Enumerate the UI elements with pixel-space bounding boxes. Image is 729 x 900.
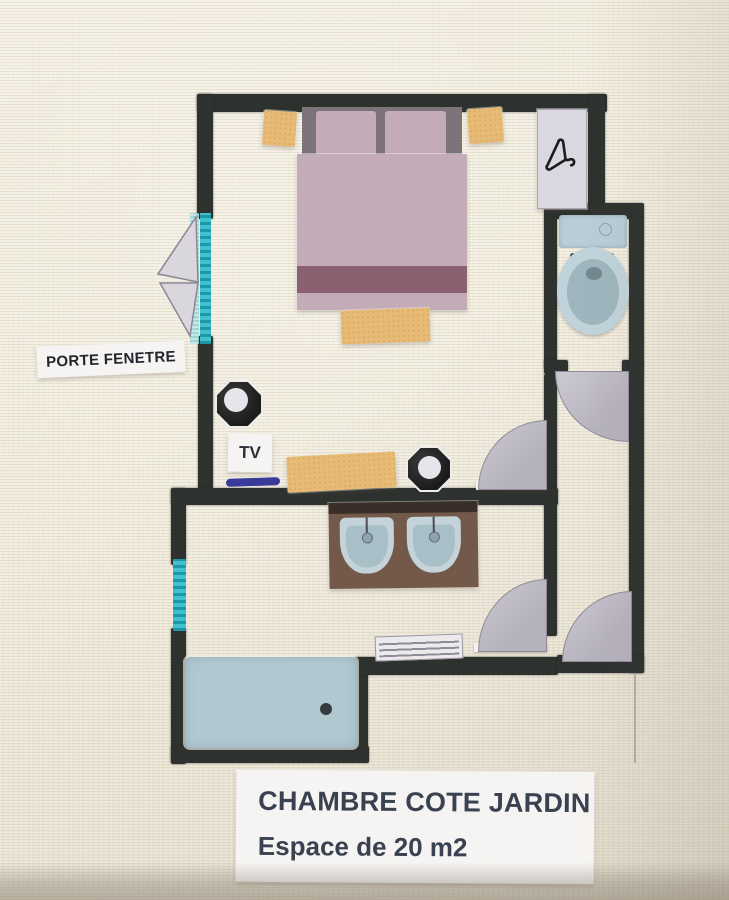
bench-foot-of-bed <box>340 307 430 344</box>
tv-marker-line <box>226 477 280 487</box>
shower-icon <box>185 657 357 748</box>
stool-dot <box>224 388 248 412</box>
wall-wc-left <box>544 217 557 369</box>
sink-icon <box>407 516 462 573</box>
sink-icon <box>340 517 395 574</box>
faucet-icon <box>366 517 368 533</box>
nightstand-left <box>262 110 297 147</box>
door-swing-icon <box>478 579 547 652</box>
wall-bedroom-left-upper <box>197 94 213 219</box>
window-strip-icon <box>173 559 186 631</box>
octagon-stool-icon <box>215 380 263 428</box>
tv-label: TV <box>228 434 273 473</box>
towel-rail-bars <box>379 638 460 658</box>
pencil-guide-line <box>634 675 636 763</box>
toilet-tank <box>559 215 627 248</box>
bed-duvet-stripe <box>297 266 467 293</box>
tv-text: TV <box>239 443 261 463</box>
bed-pillow-right <box>385 111 446 158</box>
floor-plan-photo: PORTE FENETRE TV <box>0 0 729 900</box>
toilet-bowl <box>557 247 629 335</box>
sink-drain <box>429 531 440 542</box>
wall-shower-bottom <box>171 746 369 763</box>
wall-bathroom-left-lower <box>171 628 186 764</box>
porte-fenetre-text: PORTE FENETRE <box>46 348 176 371</box>
door-swing-icon <box>562 591 632 662</box>
porte-fenetre-label: PORTE FENETRE <box>36 341 185 378</box>
door-swing-icon <box>478 420 547 490</box>
wall-bedroom-left-lower <box>198 336 213 498</box>
stool-dot <box>418 456 441 479</box>
vanity-counter <box>328 501 478 589</box>
room-area: Espace de 20 m2 <box>258 831 594 864</box>
photo-bottom-shadow <box>0 862 729 900</box>
faucet-icon <box>433 517 435 533</box>
door-swing-icon <box>555 371 629 442</box>
wall-bathroom-left-upper <box>171 488 186 565</box>
toilet-icon <box>557 213 629 335</box>
towel-rail <box>375 633 464 661</box>
wardrobe <box>537 109 587 209</box>
shower-drain <box>320 703 332 715</box>
bed-pillow-left <box>316 111 376 160</box>
nightstand-right <box>467 107 504 144</box>
vanity-backsplash <box>328 501 477 514</box>
toilet-bowl-inner <box>567 259 619 325</box>
french-door-swing-icon <box>146 212 202 342</box>
toilet-flush-button <box>599 223 612 236</box>
octagon-stool-icon <box>406 446 452 492</box>
toilet-bowl-shadow <box>586 267 602 280</box>
tv-console <box>286 451 397 493</box>
room-title: CHAMBRE COTE JARDIN <box>258 786 594 819</box>
